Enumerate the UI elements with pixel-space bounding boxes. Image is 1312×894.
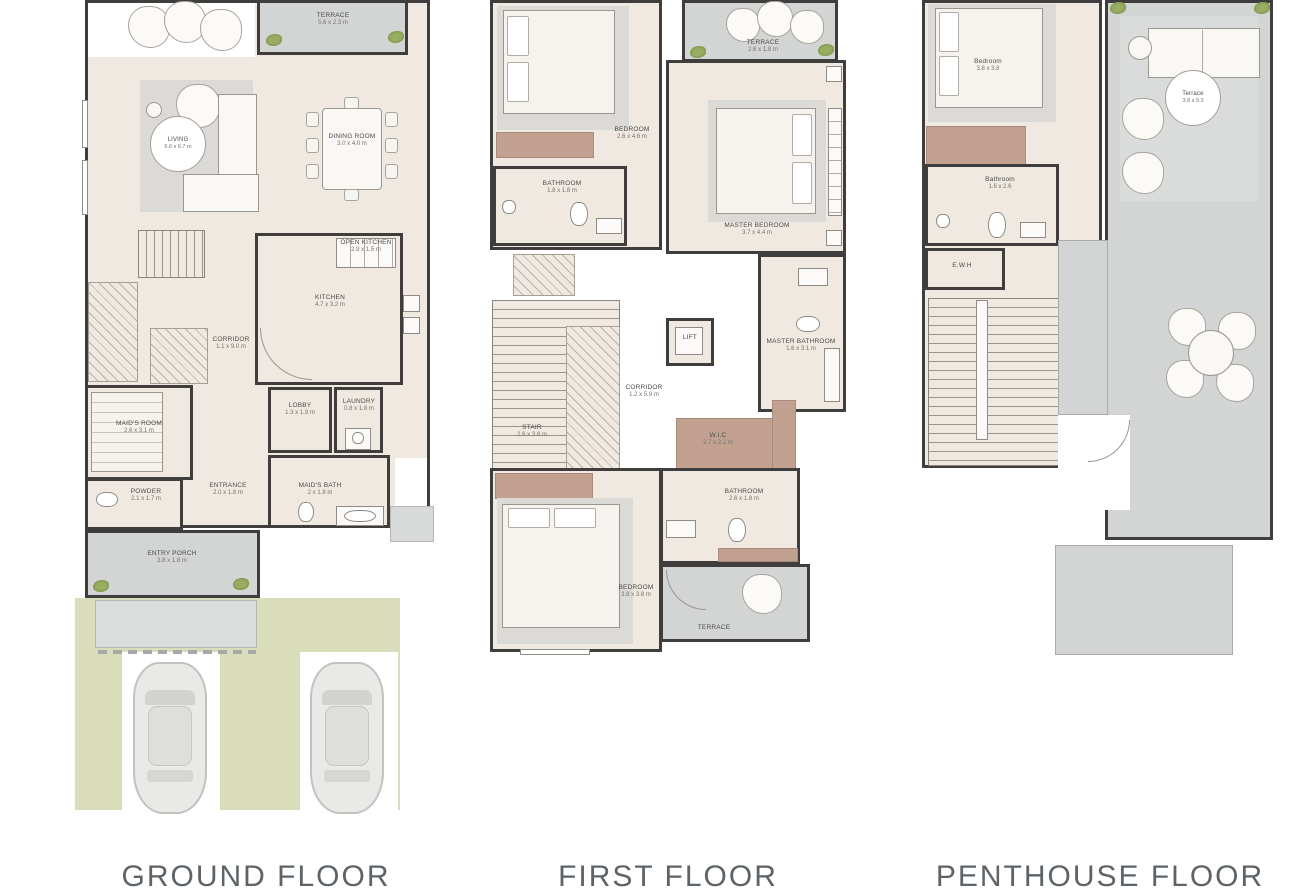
room-label-penthouse-terrace: Terrace 3.8 x 9.3 bbox=[1165, 70, 1221, 126]
pedestal-sink bbox=[936, 214, 950, 228]
terrace-chair bbox=[1122, 98, 1164, 140]
stair-rail bbox=[976, 300, 988, 440]
penthouse-terrace bbox=[1058, 240, 1108, 415]
sink bbox=[1020, 222, 1046, 238]
floor-title-first: FIRST FLOOR bbox=[498, 860, 838, 894]
penthouse-terrace-lower bbox=[1055, 545, 1233, 655]
floor-title-penthouse: PENTHOUSE FLOOR bbox=[930, 860, 1270, 894]
toilet bbox=[988, 212, 1006, 238]
penthouse-floor-plan: Bedroom 3.8 x 3.8 Bathroom 1.6 x 2.6 E.W… bbox=[0, 0, 1312, 894]
wardrobe bbox=[926, 126, 1026, 166]
pillow bbox=[939, 56, 959, 96]
outdoor-sofa bbox=[1148, 28, 1260, 78]
floorplan-sheet: TERRACE 5.6 x 2.3 m LIVING 6.6 x 6.7 m D… bbox=[0, 0, 1312, 894]
outdoor-table bbox=[1188, 330, 1234, 376]
stair-flight bbox=[928, 298, 1060, 466]
terrace-chair bbox=[1122, 152, 1164, 194]
pillow bbox=[939, 12, 959, 52]
ewh-room bbox=[925, 248, 1005, 290]
sofa-divider bbox=[1202, 30, 1203, 76]
floor-title-ground: GROUND FLOOR bbox=[86, 860, 426, 894]
ottoman bbox=[1128, 36, 1152, 60]
